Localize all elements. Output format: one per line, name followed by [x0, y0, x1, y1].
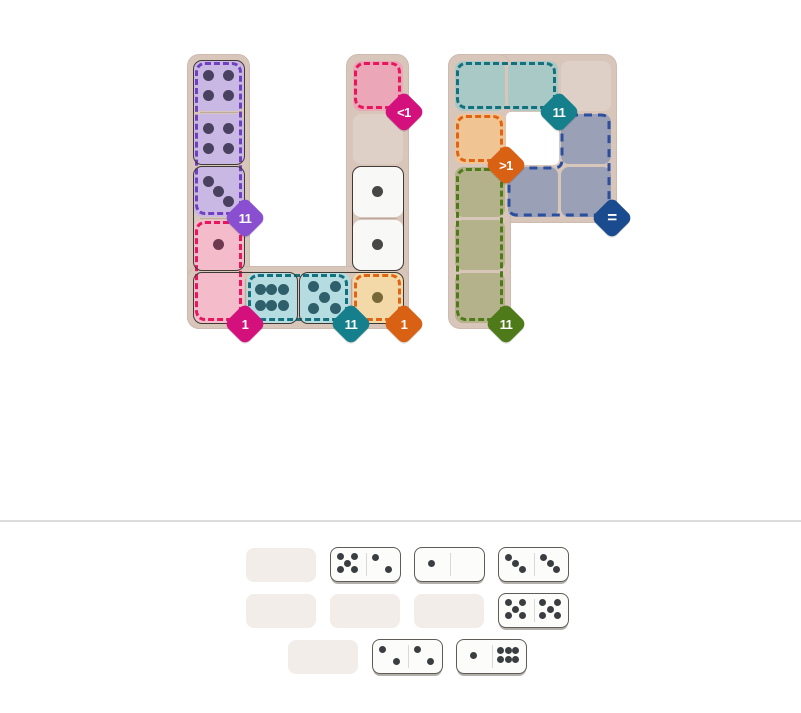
tray-pip — [547, 606, 554, 613]
tray-pip — [470, 652, 477, 659]
pips-puzzle-page: 111<111111>1=11 — [0, 0, 801, 713]
region-badge-p-blue: = — [591, 197, 633, 239]
region-badge-u-pink: 1 — [224, 303, 266, 345]
placed-domino-divider — [359, 218, 397, 219]
domino-half-left — [457, 640, 492, 673]
tray-domino-divider — [534, 599, 535, 622]
tray-pip — [337, 566, 344, 573]
tray-divider-line — [0, 520, 801, 522]
region-badge-label: 11 — [336, 309, 366, 339]
tray-pip — [505, 554, 512, 561]
domino-half-left — [331, 548, 366, 581]
domino-half-left — [373, 640, 408, 673]
tray-pip — [512, 606, 519, 613]
tray-pip — [344, 560, 351, 567]
domino-half-right — [492, 640, 527, 673]
tray-pip — [505, 612, 512, 619]
region-badge-u-purple: 11 — [224, 197, 266, 239]
placed-domino-1-1[interactable] — [352, 166, 404, 271]
tray-domino-1-6[interactable] — [456, 639, 527, 674]
tray-pip — [497, 647, 504, 654]
tray-slot-empty — [330, 594, 400, 628]
domino-half-right — [450, 548, 485, 581]
tray-pip — [372, 554, 379, 561]
region-badge-p-teal: 11 — [538, 91, 580, 133]
tray-pip — [512, 560, 519, 567]
tray-pip — [505, 599, 512, 606]
tray-domino-5-5[interactable] — [498, 593, 569, 628]
tray-pip — [428, 560, 435, 567]
tray-domino-divider — [450, 553, 451, 576]
domino-half-left — [415, 548, 450, 581]
domino-half-right — [534, 594, 569, 627]
board-cell[interactable] — [455, 220, 505, 270]
tray-slot-empty — [414, 594, 484, 628]
tray-slot-empty — [288, 640, 358, 674]
region-badge-label: <1 — [389, 97, 419, 127]
region-badge-label: 1 — [230, 309, 260, 339]
tray-domino-1-0[interactable] — [414, 547, 485, 582]
tray-pip — [512, 656, 519, 663]
tray-pip — [393, 658, 400, 665]
tray-pip — [539, 612, 546, 619]
region-badge-u-teal: 11 — [330, 303, 372, 345]
region-badge-label: 11 — [491, 309, 521, 339]
tray-pip — [553, 566, 560, 573]
region-badge-p-green: 11 — [485, 303, 527, 345]
board-cell[interactable] — [455, 61, 505, 111]
domino-half-right — [534, 548, 569, 581]
tray-pip — [512, 647, 519, 654]
tray-pip — [351, 553, 358, 560]
domino-half-left — [499, 548, 534, 581]
tray-pip — [505, 656, 512, 663]
domino-half-right — [366, 548, 401, 581]
tray-domino-divider — [534, 553, 535, 576]
tray-pip — [519, 566, 526, 573]
placed-domino-4-4[interactable] — [193, 60, 245, 165]
tray-domino-2-2[interactable] — [372, 639, 443, 674]
tray-pip — [505, 647, 512, 654]
placed-domino-divider — [200, 112, 238, 113]
tray-pip — [379, 646, 386, 653]
tray-slot-empty — [246, 594, 316, 628]
tray-pip — [414, 646, 421, 653]
tray-pip — [554, 612, 561, 619]
tray-domino-5-2[interactable] — [330, 547, 401, 582]
region-badge-label: 1 — [389, 309, 419, 339]
region-badge-label: 11 — [544, 97, 574, 127]
tray-pip — [519, 599, 526, 606]
tray-domino-3-3[interactable] — [498, 547, 569, 582]
tray-domino-divider — [408, 645, 409, 668]
domino-half-right — [408, 640, 443, 673]
region-badge-u-cream: 1 — [383, 303, 425, 345]
region-badge-u-rose: <1 — [383, 91, 425, 133]
region-badge-label: = — [597, 203, 627, 233]
tray-slot-empty — [246, 548, 316, 582]
tray-pip — [539, 599, 546, 606]
tray-pip — [547, 560, 554, 567]
tray-pip — [385, 566, 392, 573]
tray-pip — [554, 599, 561, 606]
tray-domino-divider — [366, 553, 367, 576]
tray-pip — [497, 656, 504, 663]
tray-pip — [427, 658, 434, 665]
domino-half-left — [499, 594, 534, 627]
tray-pip — [519, 612, 526, 619]
region-badge-p-orange: >1 — [485, 144, 527, 186]
tray-pip — [337, 553, 344, 560]
tray-pip — [351, 566, 358, 573]
region-badge-label: 11 — [230, 203, 260, 233]
region-badge-label: >1 — [491, 150, 521, 180]
tray-pip — [540, 554, 547, 561]
tray-domino-divider — [492, 645, 493, 668]
